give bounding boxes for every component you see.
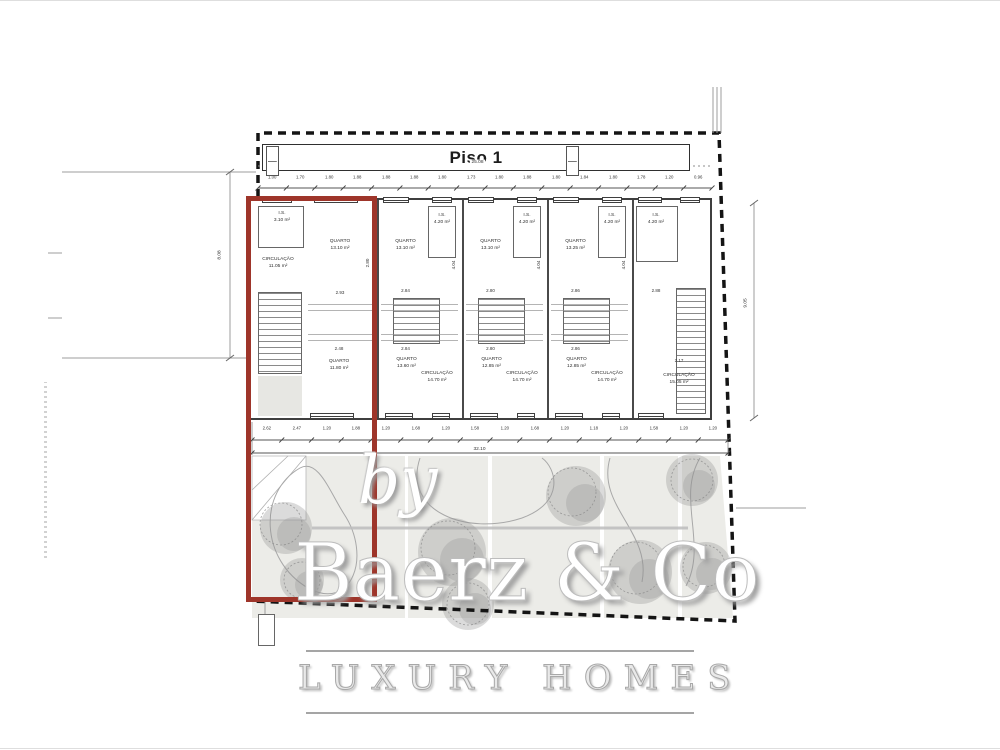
dimension-value: 1.68 (405, 427, 426, 431)
window (383, 197, 409, 203)
dimension-value: 0.96 (688, 176, 708, 180)
watermark-brand: Baerz & Co (294, 526, 760, 619)
dimension-value: 1.20 (673, 427, 694, 431)
dimension-value: 1.73 (461, 176, 481, 180)
interior-dimension: 2.80 (471, 289, 511, 294)
dimension-value: 1.88 (404, 176, 424, 180)
dimension-value: 1.20 (702, 427, 723, 431)
watermark-divider (306, 650, 694, 652)
room-label: CIRCULAÇÃO14.70 m² (499, 370, 545, 384)
room-area: 13.10 m² (384, 246, 426, 252)
room-name: I.S. (431, 213, 453, 219)
dimension-value: 1.80 (602, 176, 622, 180)
room-name: QUARTO (470, 357, 514, 363)
room-area: 4.20 m² (431, 220, 453, 226)
interior-dimension: 2.86 (556, 289, 596, 294)
room-area: 15.05 m² (659, 380, 699, 386)
room-name: I.S. (516, 213, 538, 219)
window (468, 197, 494, 203)
window (470, 413, 498, 419)
room-label: I.S.4.20 m² (428, 212, 456, 226)
height-dimension-left: 8.08 (217, 250, 222, 259)
section-tag (266, 146, 279, 176)
watermark-divider (306, 712, 694, 714)
room-area: 13.60 m² (385, 364, 429, 370)
watermark-by: by (358, 442, 438, 519)
room-name: CIRCULAÇÃO (589, 371, 626, 377)
dimension-value: 1.70 (290, 176, 310, 180)
room-area: 12.85 m² (555, 364, 599, 370)
window (432, 197, 452, 203)
room-area: 4.20 m² (516, 220, 538, 226)
unit-4: QUARTO13.25 m²I.S.4.20 m²QUARTO12.85 m²C… (547, 200, 632, 418)
dimension-value: 1.20 (375, 427, 396, 431)
dimension-value: 1.20 (613, 427, 634, 431)
room-area: 12.85 m² (470, 364, 514, 370)
dimension-value: 1.68 (524, 427, 545, 431)
dimension-value: 1.84 (574, 176, 594, 180)
window (385, 413, 413, 419)
interior-dimension: 2.84 (386, 347, 426, 352)
corridor-line (551, 304, 628, 305)
room-label: CIRCULAÇÃO14.70 m² (414, 370, 460, 384)
window (432, 413, 450, 419)
floor-title: Piso 1 (449, 148, 502, 168)
interior-dimension: 4.04 (622, 261, 627, 270)
corridor-line (381, 334, 458, 335)
room-name: CIRCULAÇÃO (504, 371, 541, 377)
corridor-line (551, 340, 628, 341)
window (602, 197, 622, 203)
room-name: I.S. (601, 213, 623, 219)
interior-dimension: 2.86 (556, 347, 596, 352)
tree-sketch (546, 466, 606, 526)
room-label: QUARTO13.10 m² (464, 238, 517, 252)
room-area: 14.70 m² (589, 378, 626, 384)
room-name: QUARTO (385, 357, 429, 363)
dimension-value: 1.18 (583, 427, 604, 431)
dimension-tag-box (258, 614, 275, 646)
window (517, 413, 535, 419)
dimension-value: 1.20 (435, 427, 456, 431)
top-dimension-row: 1.001.701.801.881.881.881.801.731.801.88… (258, 175, 712, 181)
unit-5: I.S.4.20 m²CIRCULAÇÃO15.05 m²2.882.17 (632, 200, 712, 418)
room-name: I.S. (640, 213, 672, 219)
dimension-value: 1.20 (554, 427, 575, 431)
corridor-line (381, 304, 458, 305)
stairs (676, 288, 706, 414)
interior-dimension: 2.84 (386, 289, 426, 294)
watermark-tagline: LUXURY HOMES (298, 658, 702, 698)
interior-dimension: 2.80 (471, 347, 511, 352)
room-area: 14.70 m² (504, 378, 541, 384)
room-name: CIRCULAÇÃO (419, 371, 456, 377)
tree-sketch (666, 454, 718, 506)
room-label: QUARTO12.85 m² (464, 356, 519, 370)
dimension-value: 1.80 (489, 176, 509, 180)
corridor-line (466, 304, 543, 305)
corridor-line (381, 310, 458, 311)
corridor-line (466, 340, 543, 341)
dimension-value: 1.88 (375, 176, 395, 180)
unit-2: QUARTO13.10 m²I.S.4.20 m²QUARTO13.60 m²C… (377, 200, 462, 418)
room-area: 14.70 m² (419, 378, 456, 384)
dimension-total-top: 25.08 (470, 160, 485, 165)
room-name: QUARTO (469, 239, 511, 245)
window (602, 413, 620, 419)
room-label: I.S.4.20 m² (636, 212, 676, 226)
dimension-value: 1.00 (262, 176, 282, 180)
room-area: 4.20 m² (601, 220, 623, 226)
room-label: CIRCULAÇÃO14.70 m² (584, 370, 630, 384)
dimension-value: 1.80 (319, 176, 339, 180)
interior-dimension: 4.04 (452, 261, 457, 270)
dimension-value: 1.80 (432, 176, 452, 180)
corridor-line (381, 340, 458, 341)
corridor-line (466, 334, 543, 335)
window (555, 413, 583, 419)
window (517, 197, 537, 203)
dimension-value: 1.58 (464, 427, 485, 431)
room-area: 13.25 m² (554, 246, 596, 252)
window (553, 197, 579, 203)
dimension-total-bottom: 32.10 (472, 447, 487, 452)
window (638, 413, 664, 419)
room-area: 13.10 m² (469, 246, 511, 252)
window (638, 197, 662, 203)
room-label: I.S.4.20 m² (598, 212, 626, 226)
section-tag (566, 146, 579, 176)
interior-dimension: 2.88 (640, 289, 673, 294)
dimension-value: 1.78 (631, 176, 651, 180)
room-name: QUARTO (554, 239, 596, 245)
dimension-value: 1.20 (494, 427, 515, 431)
interior-dimension: 4.04 (537, 261, 542, 270)
room-label: QUARTO13.10 m² (379, 238, 432, 252)
room-label: CIRCULAÇÃO15.05 m² (654, 372, 704, 386)
room-label: I.S.4.20 m² (513, 212, 541, 226)
dimension-value: 1.80 (546, 176, 566, 180)
height-dimension-right: 9.05 (743, 298, 748, 307)
interior-dimension: 2.17 (660, 359, 698, 364)
room-area: 4.20 m² (640, 220, 672, 226)
room-name: CIRCULAÇÃO (659, 373, 699, 379)
dimension-value: 1.88 (347, 176, 367, 180)
room-label: QUARTO13.25 m² (549, 238, 602, 252)
room-name: QUARTO (384, 239, 426, 245)
room-label: QUARTO12.85 m² (549, 356, 604, 370)
dimension-value: 1.20 (659, 176, 679, 180)
dimension-value: 1.88 (517, 176, 537, 180)
unit-3: QUARTO13.10 m²I.S.4.20 m²QUARTO12.85 m²C… (462, 200, 547, 418)
corridor-line (551, 310, 628, 311)
window (680, 197, 700, 203)
room-label: QUARTO13.60 m² (379, 356, 434, 370)
room-name: QUARTO (555, 357, 599, 363)
corridor-line (466, 310, 543, 311)
corridor-line (551, 334, 628, 335)
title-box: Piso 1 (262, 144, 690, 171)
dimension-value: 1.58 (643, 427, 664, 431)
